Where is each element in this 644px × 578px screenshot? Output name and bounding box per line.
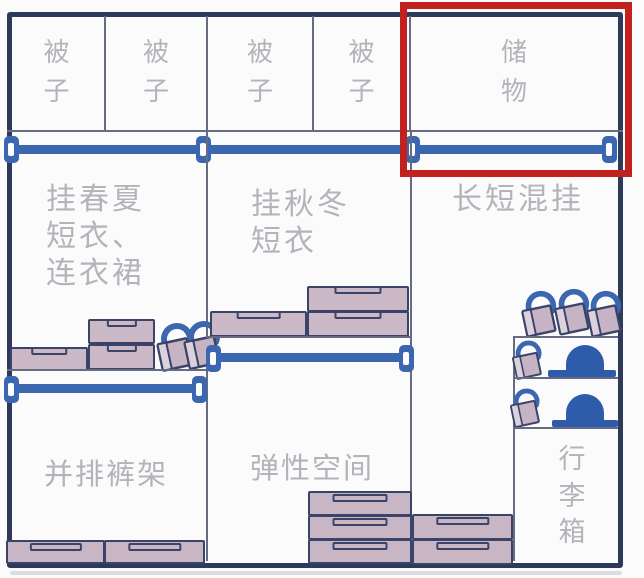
label-line: 挂春夏	[46, 181, 145, 218]
drawer-handle	[333, 494, 388, 502]
drawer-handle	[333, 518, 388, 526]
compartment-label: 被子	[42, 33, 72, 111]
label-line: 挂秋冬	[251, 186, 350, 223]
drawer-handle	[128, 543, 181, 551]
highlight-box	[400, 2, 632, 177]
drawer-handle	[436, 517, 489, 525]
label-line: 短衣	[251, 223, 350, 260]
suitcase-zone: 行李箱	[528, 436, 616, 556]
rod-bracket	[399, 345, 414, 372]
drawer	[308, 515, 412, 540]
rod-bracket	[4, 136, 19, 163]
compartment-label: 被子	[347, 33, 377, 111]
handbag	[508, 330, 546, 380]
storage-box	[307, 311, 409, 337]
quilt-compartment-3: 被子	[208, 18, 312, 126]
handbag	[583, 278, 625, 338]
box-handle-notch	[236, 311, 281, 319]
dome-base	[552, 420, 618, 427]
label-line: 连衣裙	[46, 255, 145, 292]
quilt-compartment-4: 被子	[314, 18, 409, 126]
drawer-handle	[436, 542, 489, 550]
box-handle-notch	[106, 319, 136, 327]
box-handle-notch	[106, 344, 136, 352]
wardrobe-shadow	[10, 571, 622, 575]
box-handle-notch	[31, 347, 67, 355]
box-handle-notch	[334, 286, 381, 294]
drawer	[308, 491, 412, 516]
section-label-spring-summer: 挂春夏 短衣、 连衣裙	[46, 181, 145, 292]
suitcase-label: 行李箱	[557, 441, 587, 550]
quilt-compartment-2: 被子	[106, 18, 206, 126]
shelf-line	[206, 336, 412, 338]
section-label-autumn-winter: 挂秋冬 短衣	[251, 186, 350, 260]
flexible-space-label: 弹性空间	[232, 445, 392, 487]
drawer-handle	[29, 543, 81, 551]
wardrobe-diagram: 被子 被子 被子 被子 储物 挂春夏 短衣、 连衣裙 挂秋冬 短衣 长短混挂 并…	[0, 0, 644, 578]
section-label-mixed-hang: 长短混挂	[452, 181, 584, 218]
shelf-line	[7, 369, 206, 371]
compartment-label: 被子	[245, 33, 275, 111]
drawer-handle	[333, 542, 388, 550]
box-handle-notch	[334, 311, 381, 319]
storage-box	[10, 347, 88, 371]
storage-box	[210, 311, 307, 337]
compartment-label: 被子	[141, 33, 171, 111]
storage-box	[88, 319, 155, 344]
dome-base	[548, 370, 616, 377]
rod-bracket	[192, 376, 207, 403]
hanging-rod-left	[12, 384, 198, 393]
rod-bracket	[4, 376, 19, 403]
shelf-line	[513, 427, 618, 429]
drawer	[308, 539, 412, 564]
hanging-rod-middle	[214, 353, 404, 362]
storage-box	[88, 344, 155, 370]
label-line: 短衣、	[46, 218, 145, 255]
drawer	[412, 514, 513, 540]
drawer	[104, 540, 205, 564]
handbag	[506, 378, 544, 428]
drawer	[412, 539, 513, 565]
storage-box	[307, 286, 409, 312]
rod-bracket	[196, 136, 211, 163]
quilt-compartment-1: 被子	[9, 18, 104, 126]
rod-bracket	[206, 345, 221, 372]
pants-rack-label: 并排裤架	[20, 451, 192, 493]
drawer	[6, 540, 105, 564]
